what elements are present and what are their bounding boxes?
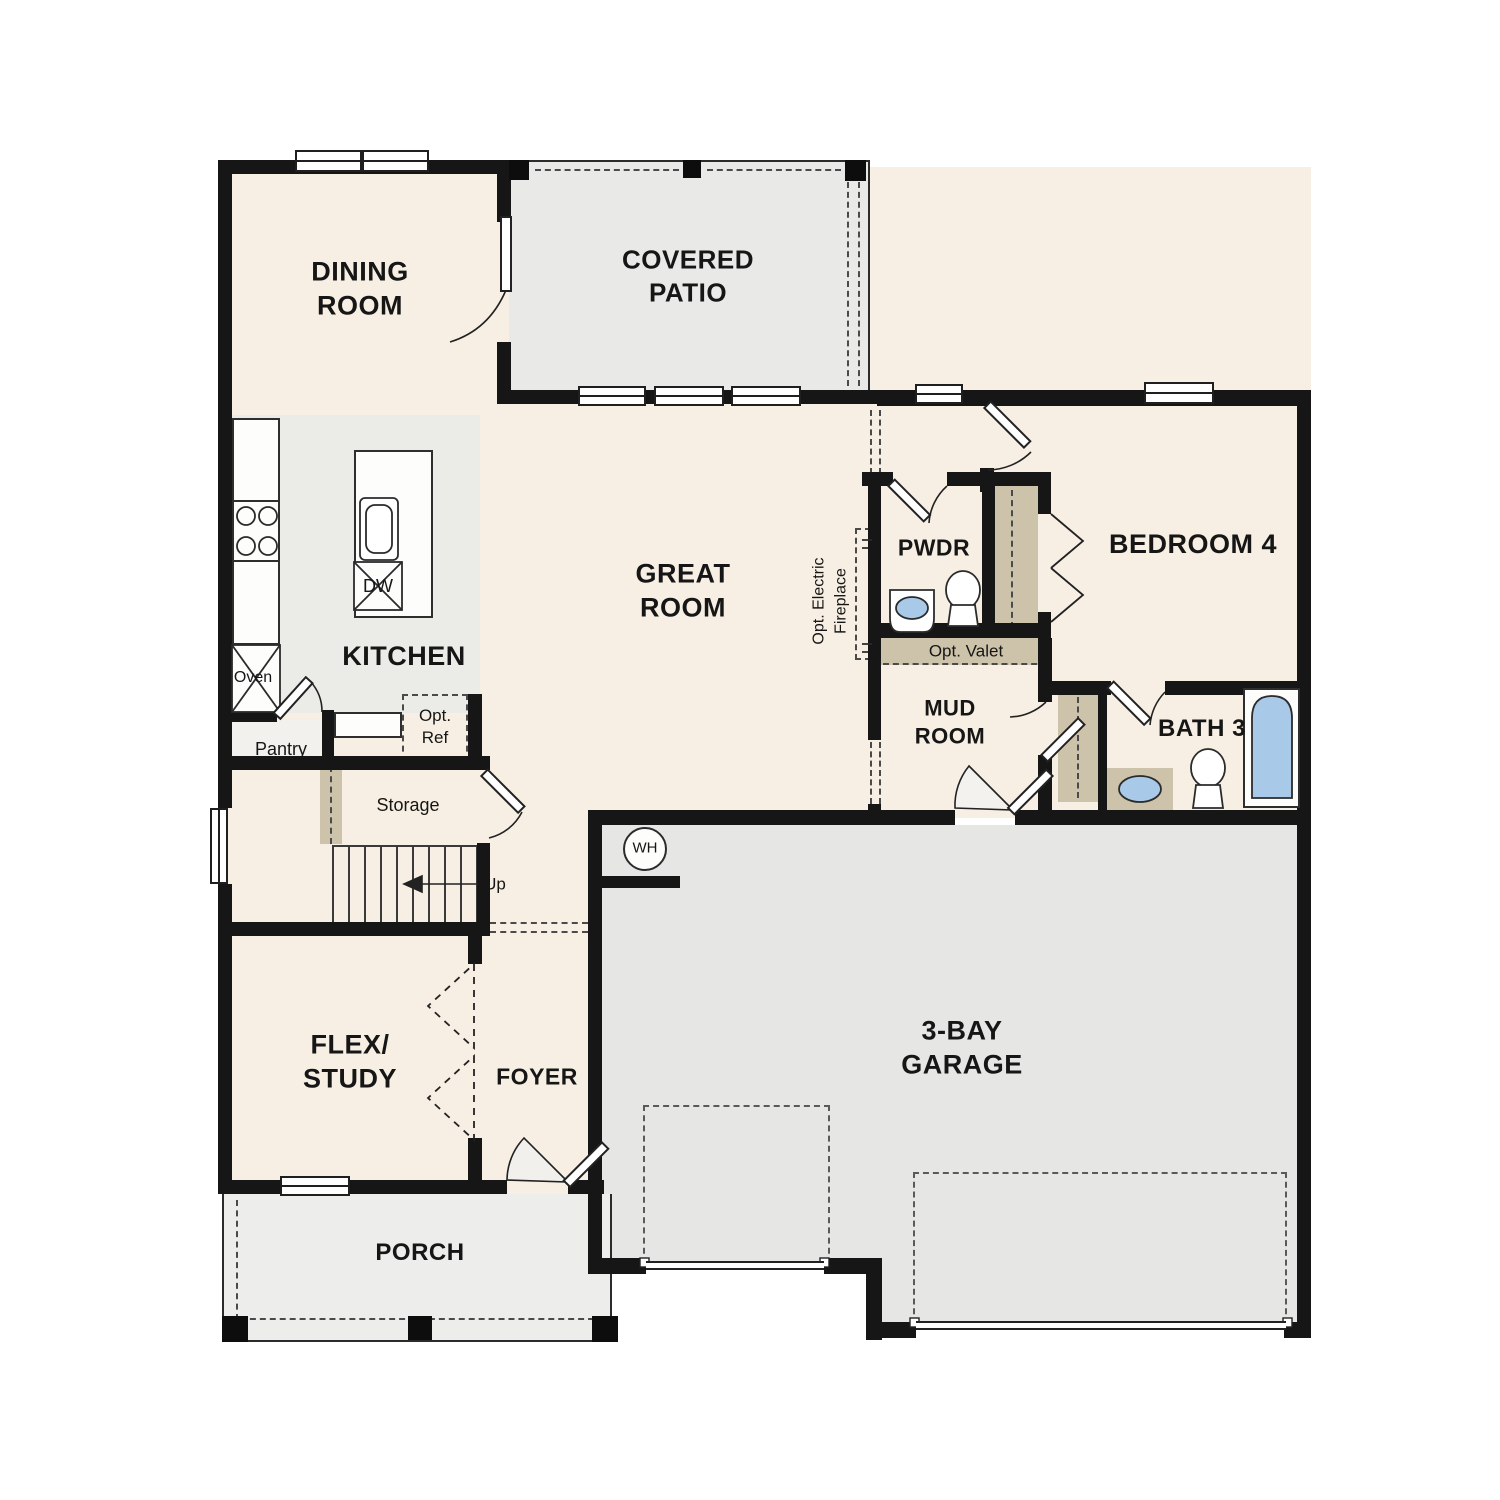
window: [1144, 382, 1214, 404]
window: [362, 150, 429, 172]
wh-label: WH: [633, 840, 658, 859]
toilet-icon: [946, 571, 980, 626]
opt-fireplace-label: Opt. Electric Fireplace: [808, 526, 851, 676]
toilet-icon: [1191, 749, 1225, 808]
opt-ref-label: Opt. Ref: [408, 705, 462, 749]
floor-plan: DINING ROOM COVERED PATIO KITCHEN GREAT …: [0, 0, 1500, 1500]
storage-door: [481, 770, 524, 838]
dw-label: DW: [363, 575, 393, 598]
window: [295, 150, 362, 172]
bath3-label: BATH 3: [1132, 714, 1272, 744]
pwdr-label: PWDR: [874, 534, 994, 563]
window: [280, 1176, 350, 1196]
garage-door: [646, 1261, 824, 1270]
bath-sink-icon: [1119, 776, 1161, 802]
dining-room-label: DINING ROOM: [290, 255, 430, 323]
porch-label: PORCH: [350, 1238, 490, 1268]
patio-door: [450, 217, 511, 342]
garage-label: 3-BAY GARAGE: [877, 1014, 1047, 1082]
front-door: [507, 1138, 608, 1187]
window: [654, 386, 724, 406]
tub-icon: [1252, 696, 1292, 798]
symbol-layer: [0, 0, 1500, 1500]
window: [731, 386, 801, 406]
garage-door: [916, 1321, 1286, 1330]
fireplace-ticks: [862, 540, 872, 652]
garage-entry-door: [955, 766, 1053, 814]
window: [210, 808, 228, 884]
opt-valet-label: Opt. Valet: [929, 640, 1003, 661]
burner-icon: [237, 537, 255, 555]
burner-icon: [237, 507, 255, 525]
pwdr-sink-icon: [890, 590, 934, 632]
bedroom4-door: [984, 402, 1031, 470]
pwdr-door: [888, 480, 947, 523]
kitchen-label: KITCHEN: [294, 640, 514, 674]
foyer-label: FOYER: [482, 1063, 592, 1092]
pantry-door: [274, 677, 322, 719]
burner-icon: [259, 507, 277, 525]
burner-icon: [259, 537, 277, 555]
oven-label: Oven: [234, 668, 272, 688]
flex-study-label: FLEX/ STUDY: [285, 1028, 415, 1096]
up-arrow: [404, 876, 478, 892]
pantry-label: Pantry: [255, 738, 307, 761]
storage-label: Storage: [376, 794, 439, 817]
great-room-label: GREAT ROOM: [618, 557, 748, 625]
window: [578, 386, 646, 406]
up-label: Up: [484, 873, 506, 894]
bedroom4-label: BEDROOM 4: [1073, 528, 1313, 562]
kitchen-sink-icon: [360, 498, 398, 560]
window: [915, 384, 963, 404]
mud-room-door: [1010, 702, 1084, 761]
mud-room-label: MUD ROOM: [900, 695, 1000, 750]
covered-patio-label: COVERED PATIO: [608, 244, 768, 309]
flex-optional-doors: [428, 964, 474, 1140]
